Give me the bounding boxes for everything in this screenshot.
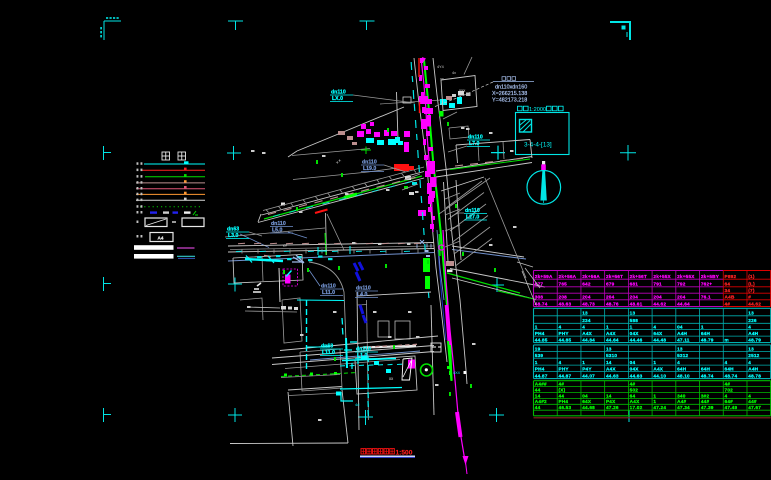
svg-text:L3.0: L3.0 — [228, 233, 238, 239]
svg-text:4X4: 4X4 — [453, 371, 460, 375]
svg-text:44.64: 44.64 — [606, 338, 619, 343]
svg-text:4: 4 — [748, 360, 751, 365]
svg-text:L4.0: L4.0 — [357, 292, 367, 298]
svg-text:1:500: 1:500 — [396, 449, 413, 456]
svg-text:204: 204 — [653, 295, 662, 300]
svg-text:44#: 44# — [748, 399, 757, 404]
svg-text:204: 204 — [677, 295, 686, 300]
svg-text:681: 681 — [630, 282, 639, 287]
svg-text:44.84: 44.84 — [582, 338, 595, 343]
svg-text:64H: 64H — [701, 331, 711, 336]
svg-text:64H: 64H — [725, 367, 735, 372]
svg-text:47.39: 47.39 — [701, 405, 714, 410]
svg-text:64H: 64H — [677, 367, 687, 372]
svg-text:5312: 5312 — [677, 353, 688, 358]
svg-text:765: 765 — [559, 282, 568, 287]
svg-text:04X: 04X — [630, 367, 640, 372]
svg-text:2k+59A: 2k+59A — [535, 274, 553, 279]
svg-text:L19.0: L19.0 — [363, 166, 376, 172]
svg-text:588: 588 — [630, 318, 639, 323]
svg-text:04: 04 — [630, 360, 636, 365]
svg-text:X=266215.138: X=266215.138 — [492, 91, 527, 97]
svg-text:13: 13 — [677, 347, 683, 352]
svg-text:48.78: 48.78 — [748, 374, 761, 379]
svg-text:L27.0: L27.0 — [466, 214, 479, 220]
svg-text:4: 4 — [725, 393, 728, 398]
svg-text:L11.0: L11.0 — [322, 350, 335, 356]
svg-text:17.02: 17.02 — [630, 405, 643, 410]
svg-text:48.10: 48.10 — [677, 374, 690, 379]
svg-text:(L): (L) — [748, 282, 755, 287]
svg-text:A4##: A4## — [535, 382, 547, 387]
svg-text:2k+56T: 2k+56T — [606, 274, 623, 279]
svg-text:04: 04 — [582, 393, 588, 398]
svg-text:P4X: P4X — [606, 399, 616, 404]
svg-text:PH4: PH4 — [535, 367, 545, 372]
svg-text:3-4-4-[13]: 3-4-4-[13] — [524, 142, 552, 149]
svg-text:4Y4: 4Y4 — [437, 65, 444, 69]
svg-text:1: 1 — [653, 360, 656, 365]
svg-text:04X: 04X — [630, 331, 640, 336]
svg-text:48.74: 48.74 — [725, 374, 738, 379]
svg-text:47.49: 47.49 — [725, 405, 738, 410]
svg-text:48.63: 48.63 — [559, 301, 572, 306]
svg-text:44.68: 44.68 — [582, 405, 595, 410]
svg-text:1: 1 — [606, 325, 609, 330]
svg-text:4: 4 — [748, 325, 751, 330]
svg-text:dn110: dn110 — [321, 284, 336, 290]
svg-text:340: 340 — [677, 393, 686, 398]
svg-text:A4X: A4X — [582, 331, 592, 336]
svg-text:2k+55X: 2k+55X — [677, 274, 695, 279]
svg-text:2512: 2512 — [748, 353, 759, 358]
svg-text:47.24: 47.24 — [653, 405, 666, 410]
svg-text:13: 13 — [748, 347, 754, 352]
svg-text:13: 13 — [630, 311, 636, 316]
svg-text:4x: 4x — [452, 71, 456, 75]
svg-text:14: 14 — [535, 393, 541, 398]
svg-text:44: 44 — [535, 387, 541, 392]
svg-text:1: 1 — [535, 325, 538, 330]
svg-text:dn110: dn110 — [468, 135, 483, 141]
svg-text:64#: 64# — [725, 399, 734, 404]
svg-text:48.74: 48.74 — [535, 301, 548, 306]
svg-text:L11.0: L11.0 — [322, 290, 335, 296]
svg-text:dn110xdn160: dn110xdn160 — [495, 85, 527, 91]
svg-text:xxx: xxx — [459, 88, 466, 93]
svg-text:A4X: A4X — [653, 367, 663, 372]
svg-text:4#: 4# — [355, 402, 360, 407]
svg-text:4: 4 — [677, 360, 680, 365]
svg-text:204: 204 — [582, 295, 591, 300]
svg-text:1: 1 — [653, 399, 656, 404]
svg-text:dn63: dn63 — [321, 344, 333, 350]
svg-text:47.67: 47.67 — [748, 405, 761, 410]
svg-text:P892: P892 — [725, 274, 737, 279]
svg-text:13: 13 — [582, 311, 588, 316]
svg-text:48.73: 48.73 — [582, 301, 595, 306]
svg-text:1: 1 — [701, 325, 704, 330]
svg-text:44: 44 — [559, 393, 565, 398]
svg-text:13: 13 — [606, 347, 612, 352]
svg-text:48.76: 48.76 — [606, 301, 619, 306]
svg-text:2k+56T: 2k+56T — [630, 274, 647, 279]
svg-text:44.63: 44.63 — [606, 374, 619, 379]
svg-text:L7.0: L7.0 — [469, 141, 479, 147]
svg-text:#: # — [748, 295, 751, 300]
svg-text:44.62: 44.62 — [653, 301, 666, 306]
svg-text:14: 14 — [606, 360, 612, 365]
svg-text:204: 204 — [606, 295, 615, 300]
svg-text:dn110: dn110 — [465, 208, 480, 214]
svg-text:P4Y: P4Y — [582, 367, 592, 372]
svg-text:76.1: 76.1 — [701, 295, 711, 300]
svg-text:A4H: A4H — [748, 331, 758, 336]
svg-text:44.10: 44.10 — [653, 374, 666, 379]
svg-text:64X: 64X — [582, 399, 592, 404]
svg-text:1: 1 — [653, 393, 656, 398]
svg-text:208: 208 — [559, 295, 568, 300]
svg-text:A4X: A4X — [606, 367, 616, 372]
svg-text:L5.0: L5.0 — [272, 227, 282, 233]
svg-text:308: 308 — [535, 295, 544, 300]
svg-text:34: 34 — [725, 288, 731, 293]
svg-text:226: 226 — [748, 318, 757, 323]
svg-text:44.63: 44.63 — [630, 374, 643, 379]
svg-text:4#: 4# — [630, 382, 636, 387]
svg-text:44.48: 44.48 — [653, 338, 666, 343]
svg-text:dn110: dn110 — [331, 90, 346, 96]
svg-text:1: 1 — [582, 360, 585, 365]
svg-text:4: 4 — [582, 325, 585, 330]
svg-text:44.46: 44.46 — [630, 338, 643, 343]
svg-text:1: 1 — [535, 360, 538, 365]
svg-text:64: 64 — [725, 282, 731, 287]
svg-text:dn110: dn110 — [356, 347, 371, 353]
svg-text:4: 4 — [559, 325, 562, 330]
svg-text:539: 539 — [535, 353, 544, 358]
svg-text:5310: 5310 — [606, 353, 617, 358]
svg-text:A4#2: A4#2 — [535, 399, 547, 404]
svg-text:PHY: PHY — [559, 367, 570, 372]
svg-text:791: 791 — [653, 282, 662, 287]
svg-text:A4: A4 — [158, 236, 164, 241]
svg-text:(X): (X) — [559, 387, 566, 392]
svg-text:4: 4 — [559, 360, 562, 365]
svg-text:4#: 4# — [559, 382, 565, 387]
svg-text:44.64: 44.64 — [677, 301, 690, 306]
svg-text:13: 13 — [748, 311, 754, 316]
svg-text:3#2: 3#2 — [701, 393, 710, 398]
svg-text:792: 792 — [677, 282, 686, 287]
svg-text:Y=482173.218: Y=482173.218 — [492, 98, 527, 104]
svg-text:48.79: 48.79 — [701, 338, 714, 343]
svg-text:64H: 64H — [701, 367, 711, 372]
svg-text:2k+55X: 2k+55X — [653, 274, 671, 279]
svg-text:A4X: A4X — [606, 331, 616, 336]
svg-text:2k+5BY: 2k+5BY — [701, 274, 720, 279]
svg-text:A4H: A4H — [677, 331, 687, 336]
svg-text:234: 234 — [582, 318, 591, 323]
svg-text:LX.0: LX.0 — [332, 96, 343, 102]
svg-text:44.85: 44.85 — [535, 338, 548, 343]
svg-text:47.11: 47.11 — [677, 338, 690, 343]
svg-text:4: 4 — [725, 360, 728, 365]
svg-text:(1): (1) — [748, 274, 755, 279]
svg-text:44.07: 44.07 — [582, 374, 595, 379]
svg-text:48.79: 48.79 — [748, 338, 761, 343]
svg-text:PH4: PH4 — [535, 331, 545, 336]
svg-text:A4H: A4H — [748, 367, 758, 372]
svg-text:A4B: A4B — [725, 295, 735, 300]
svg-text:dn63: dn63 — [227, 227, 239, 233]
svg-text:A4X: A4X — [630, 399, 640, 404]
svg-text:PH4: PH4 — [559, 399, 569, 404]
svg-text:dn110: dn110 — [356, 286, 371, 292]
svg-text:642: 642 — [582, 282, 591, 287]
svg-text:47.34: 47.34 — [677, 405, 690, 410]
svg-text:44.87: 44.87 — [559, 374, 572, 379]
svg-text:04: 04 — [677, 325, 683, 330]
svg-text:44.87: 44.87 — [535, 374, 548, 379]
svg-text:44#: 44# — [701, 399, 710, 404]
svg-text:m: m — [725, 338, 729, 343]
svg-text:4#: 4# — [725, 382, 731, 387]
svg-text:702: 702 — [725, 387, 734, 392]
svg-text:4: 4 — [748, 393, 751, 398]
svg-text:204: 204 — [630, 295, 639, 300]
svg-text:48.61: 48.61 — [630, 301, 643, 306]
svg-text:44.62: 44.62 — [748, 301, 761, 306]
svg-text:502: 502 — [630, 387, 639, 392]
svg-text:48.74: 48.74 — [701, 374, 714, 379]
svg-text:46.53: 46.53 — [559, 405, 572, 410]
svg-text:dn110: dn110 — [271, 221, 286, 227]
svg-text:762+: 762+ — [701, 282, 712, 287]
svg-text:PHY: PHY — [559, 331, 570, 336]
svg-text:44.85: 44.85 — [559, 338, 572, 343]
svg-text:L1.0: L1.0 — [357, 353, 367, 359]
svg-text:1: 1 — [630, 325, 633, 330]
svg-text:2k+56A: 2k+56A — [559, 274, 577, 279]
svg-text:2k+56A: 2k+56A — [582, 274, 600, 279]
svg-text:679: 679 — [606, 282, 615, 287]
svg-text:64: 64 — [630, 393, 636, 398]
svg-text:44: 44 — [535, 405, 541, 410]
svg-text:4#: 4# — [725, 301, 731, 306]
svg-text:4: 4 — [653, 325, 656, 330]
svg-text:47.26: 47.26 — [606, 405, 619, 410]
svg-text:A4#: A4# — [677, 399, 686, 404]
svg-text:dn110: dn110 — [362, 160, 377, 166]
svg-text:14: 14 — [606, 393, 612, 398]
svg-text:19: 19 — [535, 347, 541, 352]
svg-text:(7): (7) — [748, 288, 755, 293]
svg-text:64X: 64X — [653, 331, 663, 336]
